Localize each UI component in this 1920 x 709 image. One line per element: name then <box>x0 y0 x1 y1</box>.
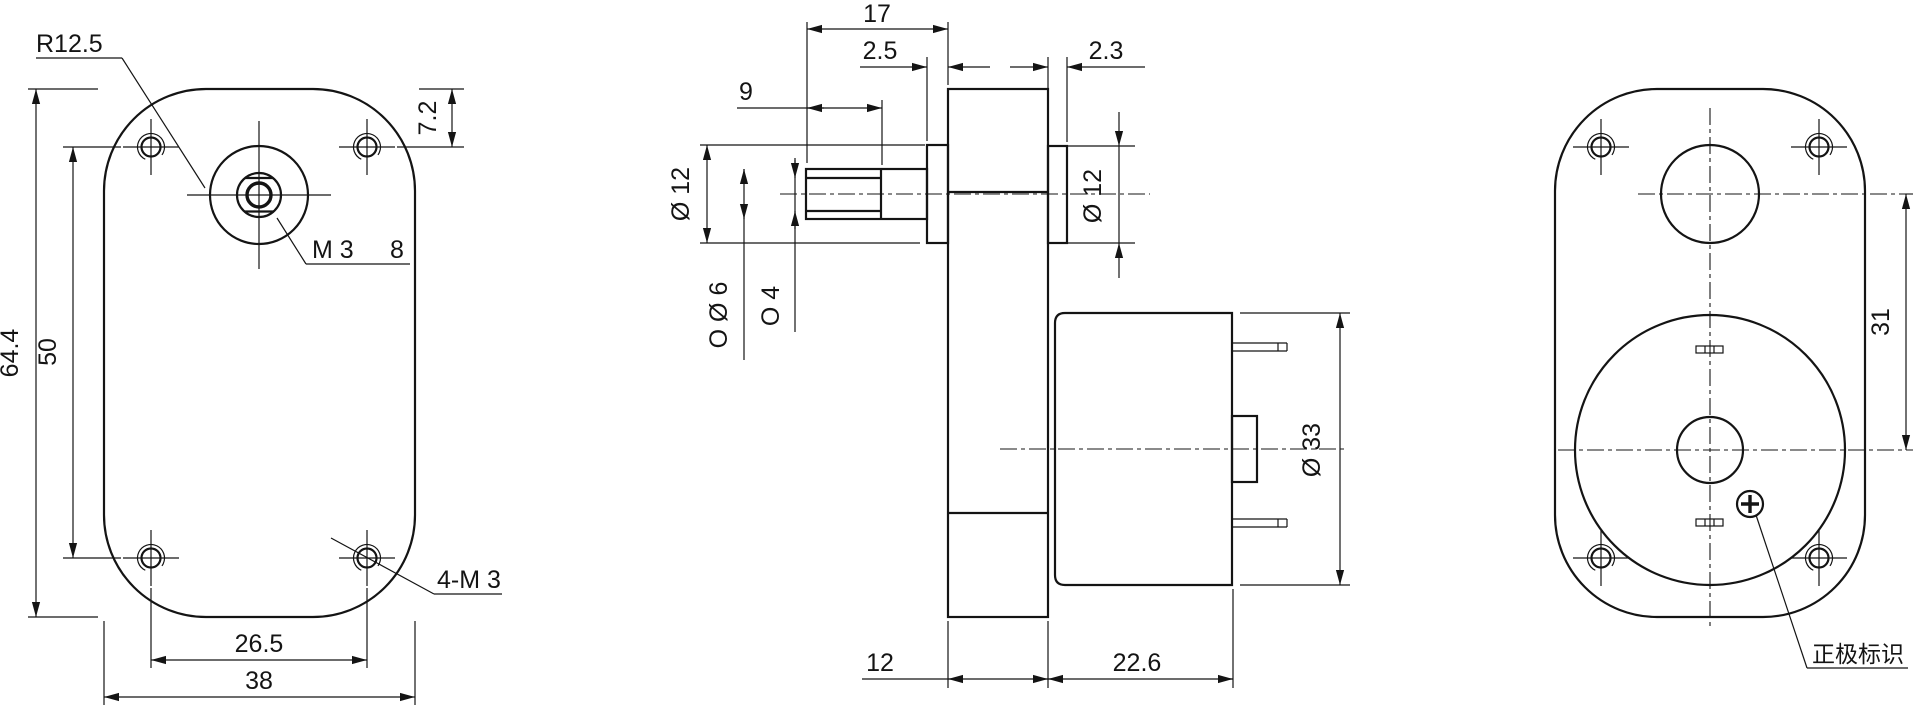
dim-flat-length: 9 <box>737 78 882 165</box>
front-view: R12.5 M 3 8 4-M 3 64.4 50 <box>0 30 502 705</box>
dim-edge-to-holes: 7.2 <box>397 89 464 147</box>
motor-dia-label: Ø 33 <box>1298 423 1326 477</box>
gearbox-body <box>948 89 1048 617</box>
hole-pitch-h-label: 26.5 <box>235 630 284 658</box>
dim-hole-pitch-horizontal: 26.5 <box>151 588 367 668</box>
mount-label: 4-M 3 <box>437 566 501 594</box>
dim-shaft-dia: O Ø 6 <box>705 169 744 360</box>
tap-depth-label: 8 <box>390 236 404 264</box>
edge-to-holes-label: 7.2 <box>414 101 442 136</box>
dim-shaft-flat: O 4 <box>757 158 795 332</box>
shaft-dia-label: O Ø 6 <box>705 282 733 349</box>
mounting-hole <box>123 119 179 175</box>
motor-terminal-pin <box>1232 343 1287 351</box>
motor-length-label: 22.6 <box>1113 649 1162 677</box>
dim-axis-distance: 31 <box>1867 194 1906 450</box>
dim-corner-radius: R12.5 <box>36 30 205 188</box>
mounting-hole <box>1573 530 1629 586</box>
dim-rear-boss-dia: Ø 12 <box>1067 112 1135 278</box>
dim-hole-pitch-vertical: 50 <box>34 147 121 558</box>
back-view: 正极标识 31 <box>1555 89 1913 668</box>
output-shaft-boss <box>187 121 331 269</box>
mounting-hole <box>339 119 395 175</box>
side-view: 17 2.5 9 2.3 Ø 12 <box>667 0 1350 688</box>
axis-distance-label: 31 <box>1867 308 1895 336</box>
mounting-hole <box>123 530 179 586</box>
body-thickness-label: 12 <box>866 649 894 677</box>
flat-length-label: 9 <box>739 78 753 106</box>
positive-terminal-marker <box>1737 491 1763 517</box>
corner-radius-label: R12.5 <box>36 30 103 58</box>
front-boss-dia-label: Ø 12 <box>667 167 695 221</box>
height-dim-label: 64.4 <box>0 329 24 378</box>
rear-boss-dia-label: Ø 12 <box>1079 169 1107 223</box>
mounting-hole <box>1791 119 1847 175</box>
mounting-hole <box>1573 119 1629 175</box>
hole-pitch-v-label: 50 <box>34 338 62 366</box>
dim-motor-length: 22.6 <box>1048 589 1233 688</box>
shaft-flat-label: O 4 <box>757 286 785 326</box>
rear-boss-width-label: 2.3 <box>1089 37 1124 65</box>
shaft-total-label: 17 <box>863 0 891 28</box>
width-dim-label: 38 <box>245 667 273 695</box>
front-boss-width-label: 2.5 <box>863 37 898 65</box>
polarity-label: 正极标识 <box>1812 642 1904 668</box>
motor-terminal-pin <box>1232 519 1287 527</box>
gearmotor-technical-drawing: R12.5 M 3 8 4-M 3 64.4 50 <box>0 0 1920 709</box>
drawing-canvas: R12.5 M 3 8 4-M 3 64.4 50 <box>0 0 1920 709</box>
dim-body-thickness: 12 <box>862 621 1048 688</box>
tap-label: M 3 <box>312 236 354 264</box>
mounting-hole <box>1791 530 1847 586</box>
